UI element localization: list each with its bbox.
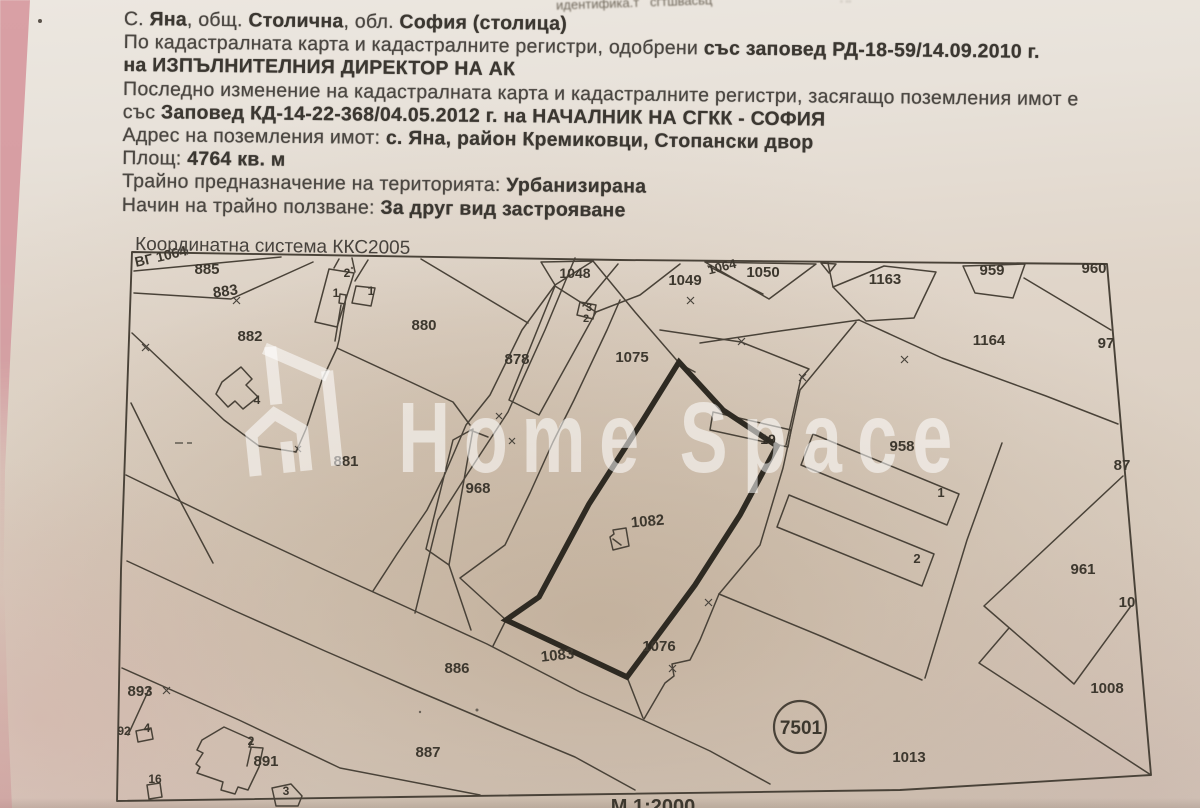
- svg-text:4: 4: [254, 393, 261, 407]
- svg-text:3: 3: [283, 784, 290, 798]
- svg-text:2: 2: [248, 734, 255, 748]
- svg-text:19: 19: [760, 431, 776, 447]
- svg-text:961: 961: [1070, 561, 1095, 578]
- svg-text:886: 886: [444, 660, 469, 677]
- svg-text:893: 893: [127, 683, 152, 700]
- svg-text:960: 960: [1081, 260, 1106, 277]
- svg-text:7501: 7501: [780, 718, 823, 739]
- svg-text:885: 885: [194, 261, 219, 278]
- svg-text:97: 97: [1098, 335, 1115, 352]
- svg-text:883: 883: [212, 281, 239, 301]
- svg-text:2: 2: [583, 313, 589, 325]
- svg-text:1008: 1008: [1090, 680, 1123, 697]
- svg-text:1164: 1164: [973, 332, 1006, 349]
- svg-text:10: 10: [1119, 594, 1136, 611]
- svg-text:1082: 1082: [630, 512, 665, 532]
- svg-text:1: 1: [333, 286, 340, 300]
- svg-text:Координатна система ККС2005: Координатна система ККС2005: [135, 234, 410, 259]
- svg-text:959: 959: [979, 262, 1004, 279]
- svg-text:891: 891: [253, 753, 278, 770]
- svg-text:2: 2: [913, 551, 920, 566]
- svg-text:4: 4: [144, 721, 151, 735]
- svg-text:1083: 1083: [540, 645, 575, 665]
- svg-text:887: 887: [415, 744, 440, 761]
- svg-text:1076: 1076: [642, 638, 675, 655]
- svg-text:М 1:2000: М 1:2000: [611, 796, 696, 808]
- svg-text:880: 880: [411, 317, 436, 334]
- svg-text:1049: 1049: [668, 272, 701, 289]
- svg-text:2: 2: [344, 266, 351, 280]
- svg-text:882: 882: [237, 328, 262, 345]
- svg-text:878: 878: [504, 351, 529, 368]
- svg-text:1: 1: [368, 284, 375, 298]
- svg-text:1048: 1048: [559, 265, 590, 281]
- svg-text:1075: 1075: [615, 349, 648, 366]
- svg-text:1013: 1013: [892, 749, 925, 766]
- svg-text:1050: 1050: [746, 264, 779, 281]
- svg-text:16: 16: [148, 772, 162, 786]
- svg-text:87: 87: [1114, 457, 1131, 474]
- svg-text:92: 92: [117, 724, 131, 738]
- svg-text:1064: 1064: [706, 256, 738, 278]
- svg-text:Space: Space: [680, 382, 968, 493]
- svg-text:1163: 1163: [869, 271, 902, 288]
- svg-text:Home: Home: [398, 382, 653, 493]
